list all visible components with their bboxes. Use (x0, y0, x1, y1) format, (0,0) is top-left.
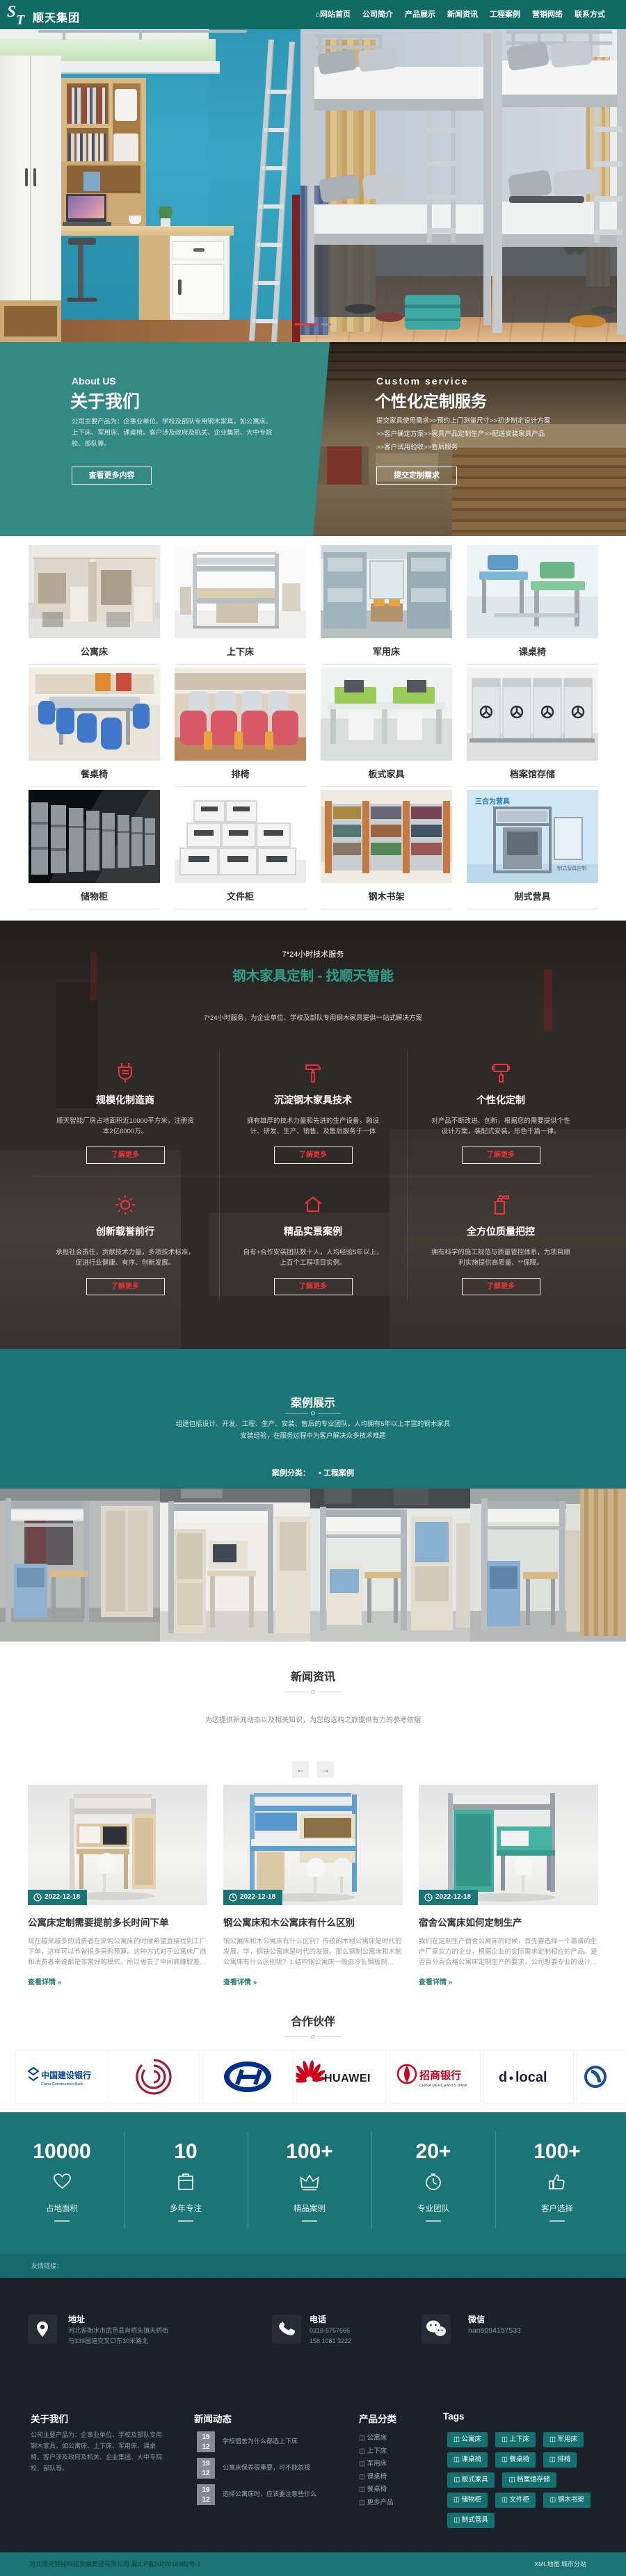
svg-text:T: T (16, 13, 25, 26)
svg-text:HUAWEI: HUAWEI (324, 2073, 371, 2084)
svg-text:d: d (499, 2070, 507, 2085)
svg-text:制式营具定制: 制式营具定制 (557, 865, 586, 871)
svg-text:CHINA MERCHANTS BANK: CHINA MERCHANTS BANK (419, 2084, 468, 2088)
svg-text:China Construction Bank: China Construction Bank (41, 2082, 83, 2087)
svg-text:S: S (7, 3, 16, 20)
svg-text:三合为营具: 三合为营具 (475, 797, 510, 806)
svg-text:local: local (515, 2070, 547, 2085)
svg-text:中国建设银行: 中国建设银行 (41, 2070, 91, 2080)
svg-text:招商银行: 招商银行 (419, 2069, 461, 2082)
